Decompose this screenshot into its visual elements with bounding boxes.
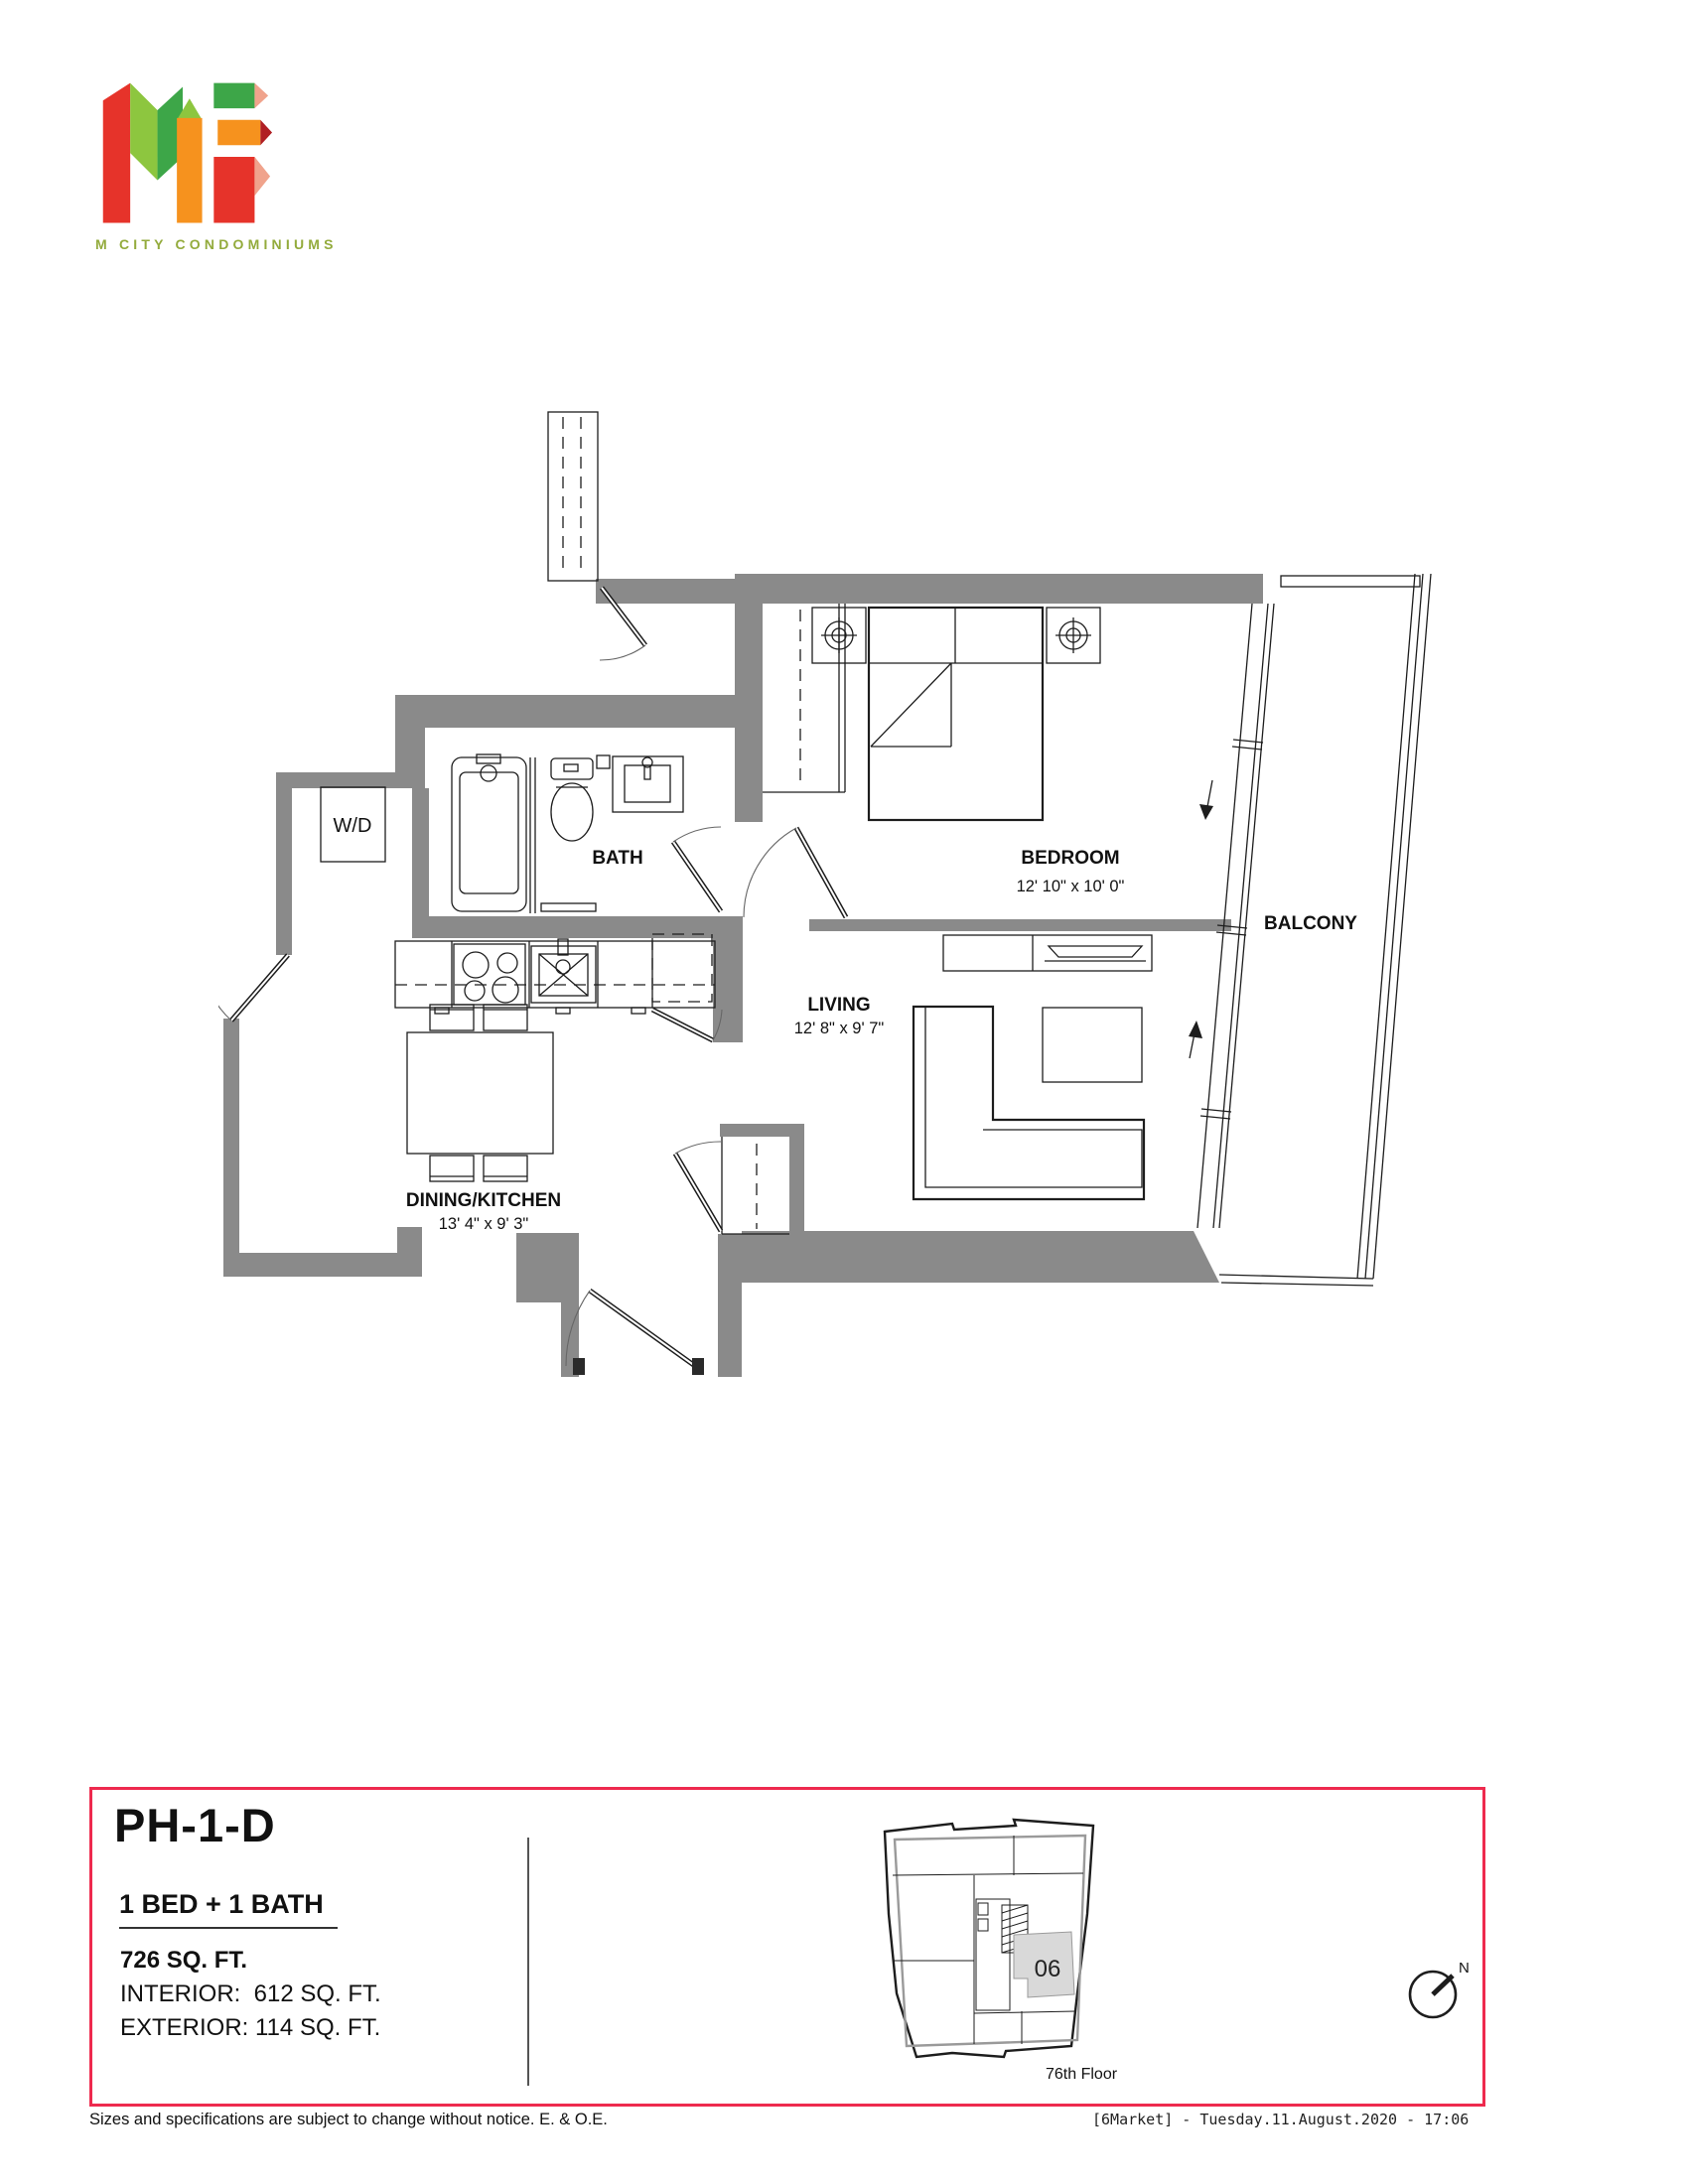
compass-north-label: N (1459, 1960, 1470, 1977)
sofa (914, 1007, 1144, 1199)
nightstand-right (1047, 608, 1100, 663)
laundry-door (218, 955, 288, 1021)
bath-door (673, 827, 721, 911)
kitchen-door (652, 1010, 722, 1040)
key-plan: 06 (855, 1810, 1153, 2078)
footer-disclaimer: Sizes and specifications are subject to … (89, 2111, 608, 2129)
walls (223, 574, 1263, 1377)
floorplan-page: M CITY CONDOMINIUMS (0, 0, 1688, 2184)
m3-logo-icon (91, 58, 320, 256)
room-labels: BEDROOM 12' 10" x 10' 0" LIVING 12' 8" x… (334, 815, 1358, 1233)
key-plan-unit-number: 06 (1035, 1956, 1061, 1982)
bath-divider (530, 757, 535, 913)
entry-door (566, 1291, 704, 1375)
towel-bar (541, 903, 596, 911)
unit-area-interior: INTERIOR: 612 SQ. FT. (120, 1980, 381, 2008)
room-label-balcony: BALCONY (1264, 913, 1357, 934)
room-dims-bedroom: 12' 10" x 10' 0" (1017, 878, 1125, 895)
window-wall (1197, 604, 1274, 1228)
bath-vanity (613, 756, 683, 812)
unit-area-exterior: EXTERIOR: 114 SQ. FT. (120, 2014, 380, 2042)
bedroom-door (744, 828, 846, 917)
footer-stamp: [6Market] - Tuesday.11.August.2020 - 17:… (1092, 2111, 1470, 2128)
room-label-bath: BATH (592, 848, 642, 869)
arrow-up-icon (1189, 1021, 1202, 1058)
unit-config: 1 BED + 1 BATH (119, 1889, 338, 1929)
room-label-dining: DINING/KITCHEN (406, 1190, 561, 1211)
unit-info-box: PH-1-D 1 BED + 1 BATH 726 SQ. FT. INTERI… (89, 1787, 1485, 2107)
room-label-bedroom: BEDROOM (1021, 848, 1119, 869)
cooktop (454, 944, 525, 1005)
bathtub (452, 754, 526, 911)
room-dims-dining: 13' 4" x 9' 3" (439, 1215, 529, 1233)
dining-table (407, 1005, 553, 1181)
kitchen-sink (531, 939, 596, 1003)
info-box-divider (527, 1838, 529, 2086)
room-dims-living: 12' 8" x 9' 7" (794, 1020, 885, 1037)
brand-tagline: M CITY CONDOMINIUMS (95, 236, 338, 252)
compass-icon: N (1393, 1951, 1492, 2035)
fridge (652, 934, 712, 1002)
shaft-closet (548, 412, 645, 660)
floor-plan-drawing: BEDROOM 12' 10" x 10' 0" LIVING 12' 8" x… (218, 397, 1470, 1390)
toilet (551, 755, 610, 841)
unit-title: PH-1-D (114, 1798, 276, 1852)
arrow-down-icon (1199, 780, 1213, 820)
key-plan-floor-label: 76th Floor (1046, 2066, 1117, 2084)
foyer-closet (675, 1137, 789, 1234)
room-label-living: LIVING (807, 995, 870, 1016)
bed (869, 608, 1043, 820)
tv-console (943, 935, 1152, 971)
coffee-table (1043, 1008, 1142, 1082)
unit-area-total: 726 SQ. FT. (120, 1947, 247, 1975)
washer-dryer-label: W/D (334, 815, 372, 837)
